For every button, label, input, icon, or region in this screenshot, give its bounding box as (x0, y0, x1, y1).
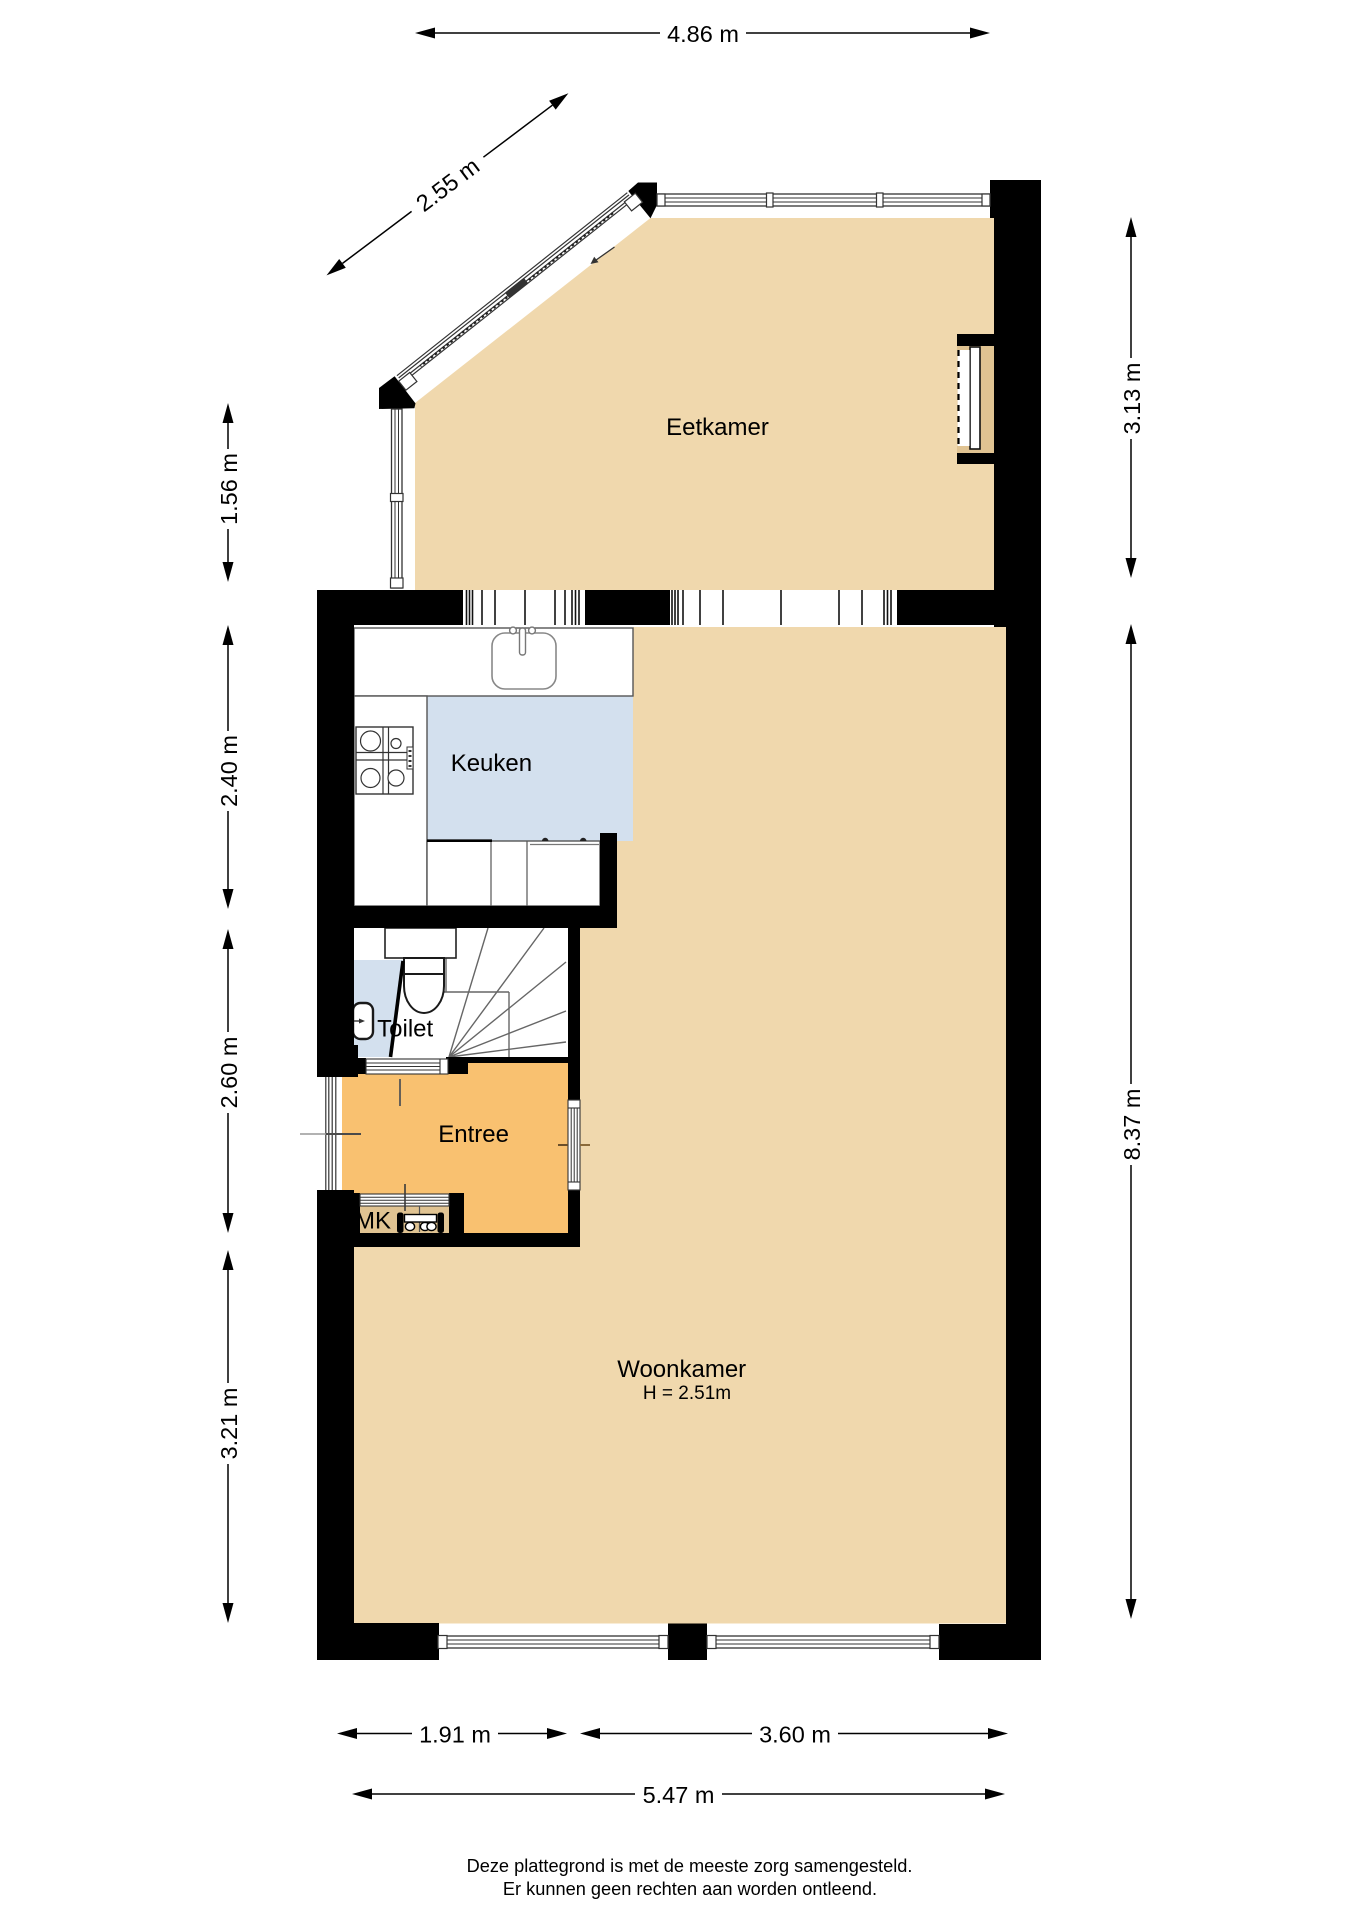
svg-text:1.91 m: 1.91 m (419, 1721, 491, 1747)
svg-text:5.47 m: 5.47 m (643, 1782, 715, 1808)
svg-text:1.56 m: 1.56 m (216, 453, 242, 525)
svg-text:Woonkamer: Woonkamer (617, 1356, 746, 1383)
svg-text:3.13 m: 3.13 m (1119, 363, 1145, 435)
svg-text:H = 2.51m: H = 2.51m (643, 1383, 731, 1404)
svg-text:8.37 m: 8.37 m (1119, 1089, 1145, 1161)
svg-text:3.21 m: 3.21 m (216, 1388, 242, 1460)
svg-text:2.60 m: 2.60 m (216, 1037, 242, 1109)
svg-text:3.60 m: 3.60 m (759, 1721, 831, 1747)
svg-text:MK: MK (355, 1208, 391, 1235)
svg-text:Entree: Entree (438, 1121, 509, 1148)
svg-text:Toilet: Toilet (377, 1016, 433, 1043)
svg-text:Keuken: Keuken (451, 750, 532, 777)
svg-text:Deze plattegrond is met de mee: Deze plattegrond is met de meeste zorg s… (467, 1856, 913, 1876)
svg-text:Er kunnen geen rechten aan wor: Er kunnen geen rechten aan worden ontlee… (503, 1879, 877, 1899)
svg-text:4.86 m: 4.86 m (667, 21, 739, 47)
svg-text:Eetkamer: Eetkamer (666, 414, 769, 441)
svg-text:2.40 m: 2.40 m (216, 735, 242, 807)
